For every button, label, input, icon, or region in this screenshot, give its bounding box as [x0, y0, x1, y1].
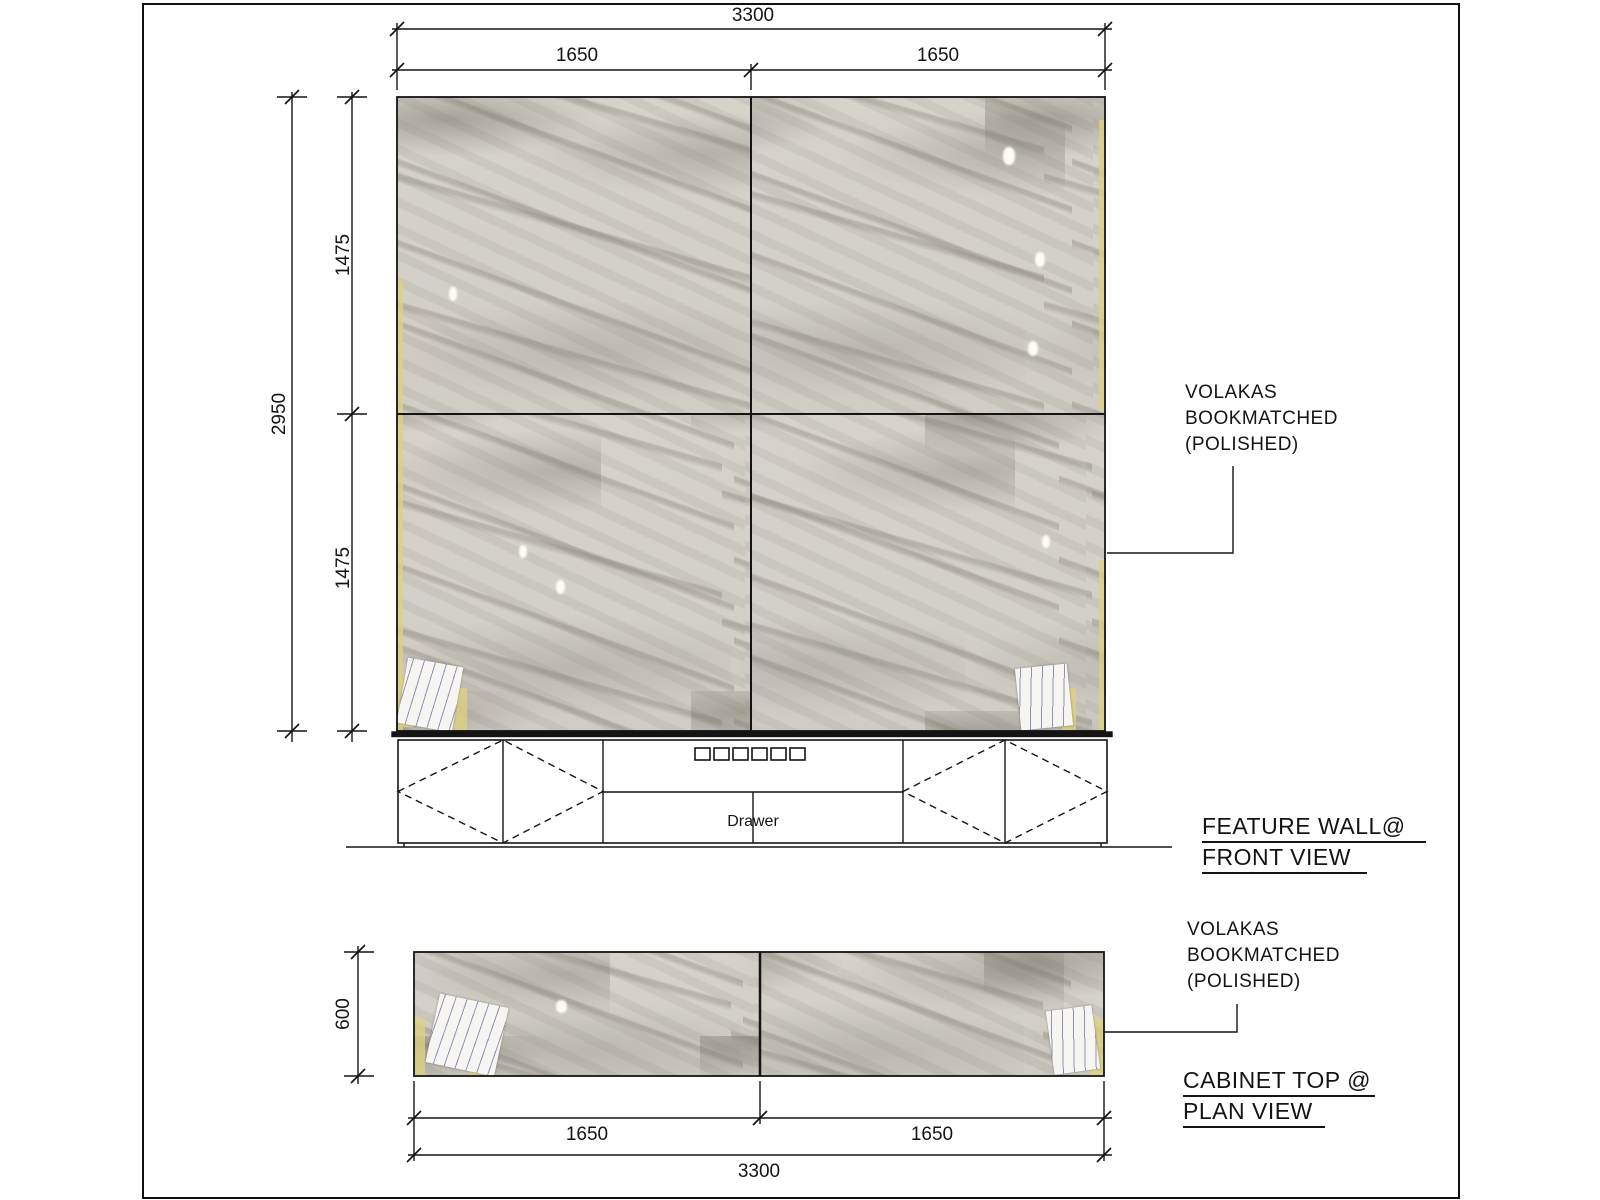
- material-label-line: BOOKMATCHED: [1187, 943, 1340, 969]
- dim-slab-depth: 600: [333, 998, 355, 1030]
- material-label-line: (POLISHED): [1185, 432, 1338, 458]
- dim-plan-width-right: 1650: [911, 1124, 953, 1146]
- material-leader-front: [1107, 466, 1233, 553]
- plan-view-title-line2: PLAN VIEW: [1183, 1097, 1325, 1128]
- door-swing-symbol-left: [398, 740, 603, 843]
- dimension-lines-top: [390, 22, 1112, 90]
- material-label-line: VOLAKAS: [1187, 917, 1340, 943]
- dim-panel-width-right: 1650: [917, 45, 959, 67]
- front-view-title-line1: FEATURE WALL@: [1202, 812, 1426, 843]
- material-label-front: VOLAKAS BOOKMATCHED (POLISHED): [1185, 380, 1338, 458]
- dim-panel-height-top: 1475: [333, 234, 355, 276]
- dim-plan-overall-width: 3300: [738, 1161, 780, 1183]
- material-label-plan: VOLAKAS BOOKMATCHED (POLISHED): [1187, 917, 1340, 995]
- dim-panel-width-left: 1650: [556, 45, 598, 67]
- dim-plan-width-left: 1650: [566, 1124, 608, 1146]
- wall-outline: [392, 97, 1112, 737]
- material-label-line: (POLISHED): [1187, 969, 1340, 995]
- dimension-lines-bottom: [407, 1081, 1112, 1162]
- plan-view-title-line1: CABINET TOP @: [1183, 1066, 1375, 1097]
- plan-view-title: CABINET TOP @ PLAN VIEW: [1183, 1066, 1375, 1128]
- dim-overall-width-top: 3300: [732, 5, 774, 27]
- cabinet-vent-squares: [695, 748, 805, 760]
- material-label-line: VOLAKAS: [1185, 380, 1338, 406]
- dim-panel-height-bottom: 1475: [333, 547, 355, 589]
- drawing-linework: [0, 0, 1600, 1200]
- drawing-sheet: 3300 1650 1650 2950 1475 1475 600 1650 1…: [0, 0, 1600, 1200]
- front-view-title: FEATURE WALL@ FRONT VIEW: [1202, 812, 1426, 874]
- drawer-label: Drawer: [727, 813, 779, 831]
- plan-slab-outline: [414, 952, 1104, 1076]
- front-view-title-line2: FRONT VIEW: [1202, 843, 1367, 874]
- dim-overall-height: 2950: [269, 393, 291, 435]
- material-label-line: BOOKMATCHED: [1185, 406, 1338, 432]
- material-leader-plan: [1104, 1004, 1237, 1032]
